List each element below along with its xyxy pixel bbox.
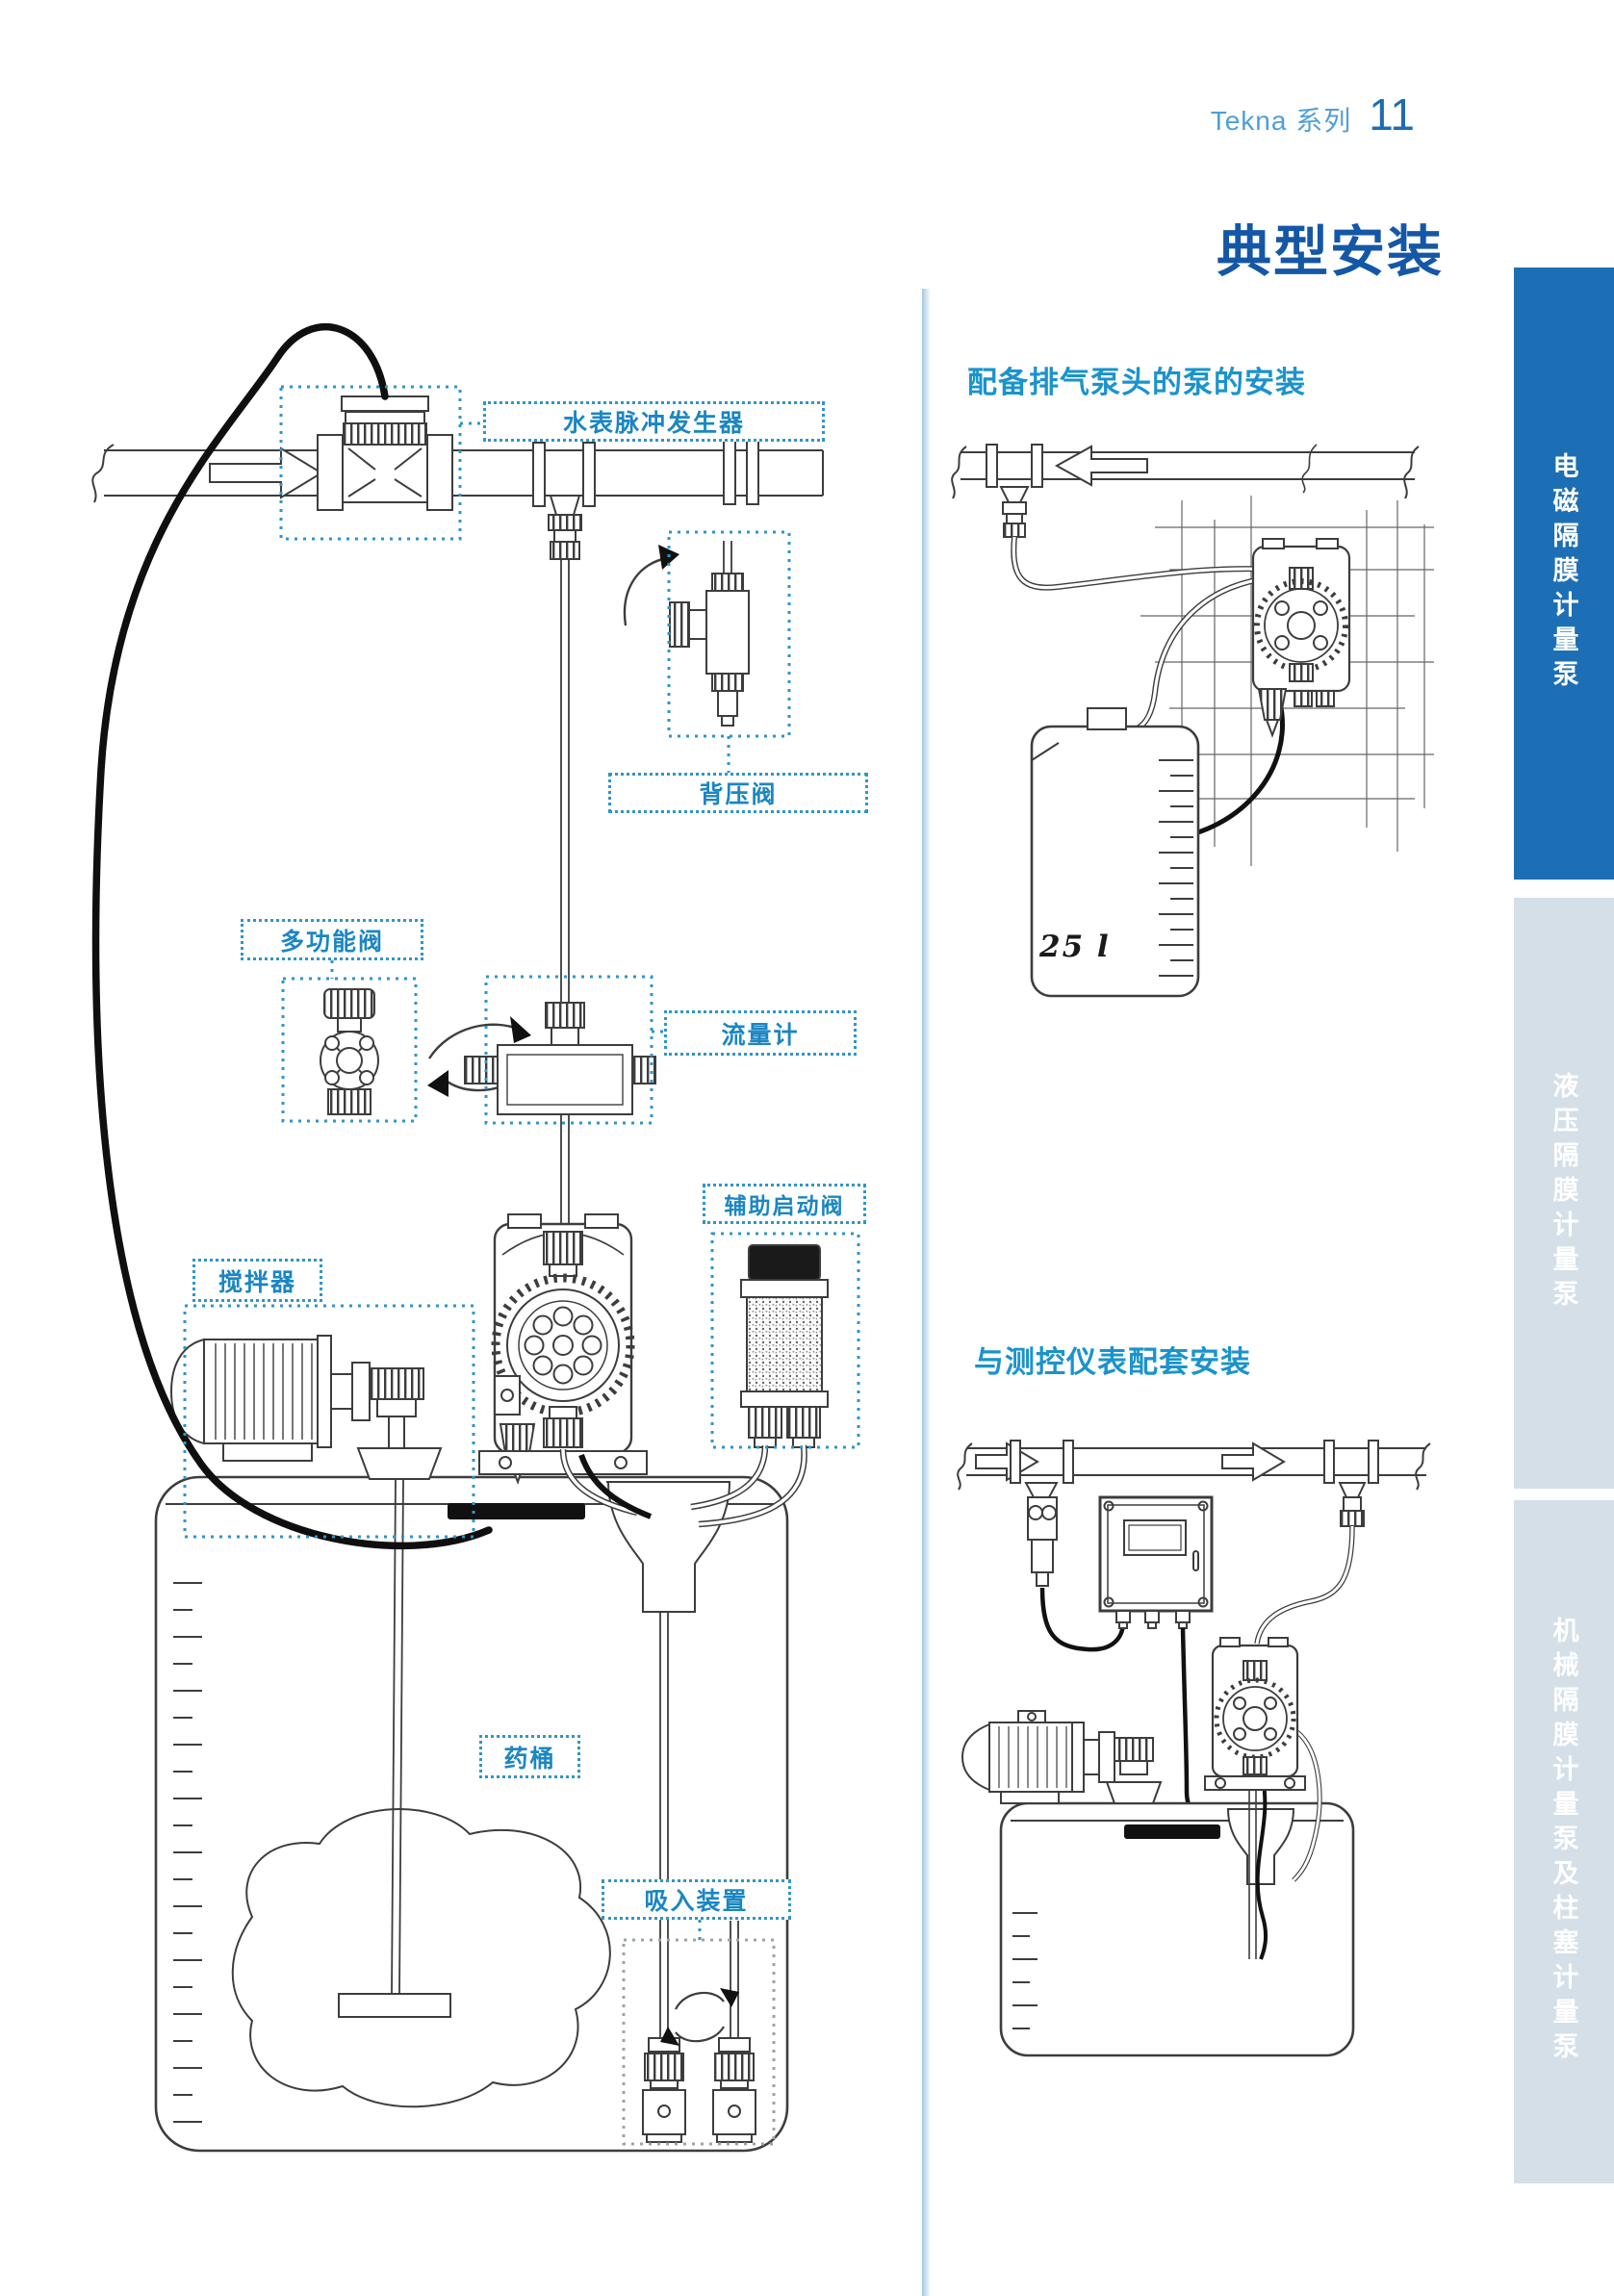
page-title: 典型安装 bbox=[1097, 208, 1444, 287]
flow-meter-drawing bbox=[465, 1003, 655, 1230]
instruments-installation-diagram bbox=[958, 1441, 1430, 2055]
sidebar-tab-hydraulic-pumps: 液压隔膜计量泵 bbox=[1514, 898, 1614, 1489]
sidebar-tab-label: 液压隔膜计量泵 bbox=[1546, 1072, 1583, 1314]
flow-arrow-right bbox=[210, 448, 321, 497]
rotate-arrowhead bbox=[427, 1070, 448, 1097]
degassing-installation-diagram bbox=[952, 445, 1434, 996]
page-header: Tekna 系列 11 bbox=[1097, 89, 1415, 140]
dosing-pump-drawing bbox=[479, 1214, 647, 1482]
main-installation-diagram bbox=[92, 327, 858, 2151]
callout-water-meter: 水表脉冲发生器 bbox=[483, 401, 825, 442]
pump-drawing bbox=[1253, 539, 1349, 735]
water-meter-drawing bbox=[318, 396, 452, 510]
aux-start-valve-drawing bbox=[741, 1245, 828, 1447]
water-pipe-drawing bbox=[92, 441, 823, 504]
installation-line-art bbox=[0, 0, 1614, 2296]
degassing-section-heading: 配备排气泵头的泵的安装 bbox=[967, 358, 1306, 401]
callout-chemical-tank: 药桶 bbox=[479, 1735, 580, 1778]
page-number: 11 bbox=[1369, 89, 1415, 140]
callout-flow-meter: 流量计 bbox=[664, 1010, 857, 1056]
injection-tee-drawing bbox=[533, 443, 595, 1003]
tank-lid-bar bbox=[448, 1503, 585, 1519]
series-name: Tekna 系列 bbox=[1211, 100, 1352, 139]
tank-lid-bar bbox=[1124, 1824, 1220, 1839]
callout-mixer: 搅拌器 bbox=[192, 1259, 322, 1302]
callout-multifunction-valve: 多功能阀 bbox=[241, 919, 423, 960]
back-pressure-valve-drawing bbox=[625, 541, 749, 726]
callout-back-pressure-valve: 背压阀 bbox=[608, 773, 868, 813]
callout-suction-device: 吸入装置 bbox=[602, 1879, 791, 1920]
sidebar-tab-label: 电磁隔膜计量泵 bbox=[1546, 452, 1583, 695]
tank-drawing bbox=[1001, 1803, 1353, 2055]
tank-capacity-label: 25 l bbox=[1039, 930, 1111, 964]
rotate-arrowhead bbox=[510, 1016, 531, 1043]
pump-drawing bbox=[1205, 1638, 1305, 1790]
pipe-drawing bbox=[952, 445, 1419, 537]
mixer-motor-drawing bbox=[962, 1711, 1161, 1803]
catalog-page: Tekna 系列 11 典型安装 配备排气泵头的泵的安装 与测控仪表配套安装 2… bbox=[0, 0, 1614, 2296]
controller-box-drawing bbox=[1100, 1497, 1222, 1828]
injection-valve-drawing bbox=[1257, 1483, 1365, 1644]
callout-aux-start-valve: 辅助启动阀 bbox=[703, 1184, 866, 1224]
instruments-section-heading: 与测控仪表配套安装 bbox=[974, 1338, 1251, 1381]
sidebar-tab-label: 机械隔膜计量泵及柱塞计量泵 bbox=[1546, 1617, 1583, 2067]
sidebar-tab-solenoid-pumps: 电磁隔膜计量泵 bbox=[1514, 268, 1614, 880]
sidebar-tab-mechanical-pumps: 机械隔膜计量泵及柱塞计量泵 bbox=[1514, 1500, 1614, 2183]
